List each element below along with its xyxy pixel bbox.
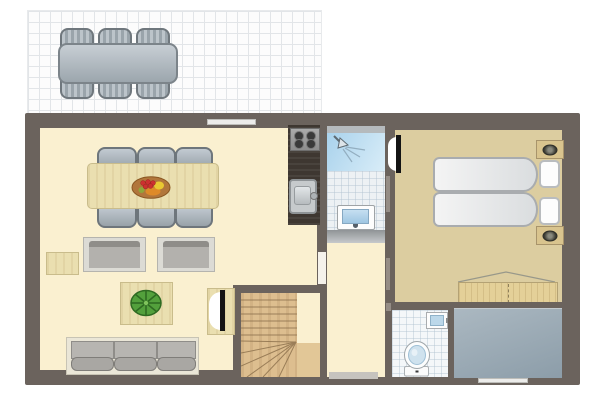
wall xyxy=(320,125,327,230)
bedroom-door xyxy=(396,135,401,173)
entry-strip xyxy=(329,372,378,379)
bed-pillow xyxy=(539,160,560,188)
plant-icon xyxy=(128,288,164,318)
living-room-top-window xyxy=(207,119,256,125)
shower xyxy=(327,133,385,171)
side-table xyxy=(46,252,79,275)
door-opening xyxy=(386,258,390,290)
stair-landing xyxy=(297,343,320,377)
bed-pillow xyxy=(539,197,560,225)
lamp-icon xyxy=(543,144,558,155)
shower-head-icon xyxy=(327,133,385,171)
armchair xyxy=(157,237,215,272)
wall-sink xyxy=(426,312,448,329)
stove xyxy=(290,128,320,151)
kitchen-sink xyxy=(289,179,317,214)
terrace xyxy=(27,10,322,115)
sofa xyxy=(66,337,199,375)
hallway-opening xyxy=(318,252,326,284)
door-opening xyxy=(386,303,391,311)
roof-slope-line xyxy=(458,269,556,283)
door-opening xyxy=(386,176,390,212)
toilet xyxy=(403,340,431,377)
stairwell-wall xyxy=(233,285,327,293)
floor-plan xyxy=(0,0,600,400)
bathroom-threshold xyxy=(327,230,385,243)
nightstand xyxy=(536,226,564,245)
fruit-bowl xyxy=(131,176,171,199)
lamp-icon xyxy=(543,230,558,241)
storage-room-floor xyxy=(454,308,562,378)
hallway-floor xyxy=(327,243,385,377)
storage-room-window xyxy=(478,378,528,383)
wall xyxy=(385,310,392,377)
outdoor-dining-table xyxy=(58,43,178,84)
washbasin xyxy=(337,205,375,230)
winder-stairs xyxy=(241,293,297,377)
bed-mattress xyxy=(433,192,538,227)
bed-mattress xyxy=(433,157,538,192)
armchair xyxy=(83,237,146,272)
nightstand xyxy=(536,140,564,159)
stair-hall-strip xyxy=(297,293,320,343)
stairs-door xyxy=(220,290,225,331)
